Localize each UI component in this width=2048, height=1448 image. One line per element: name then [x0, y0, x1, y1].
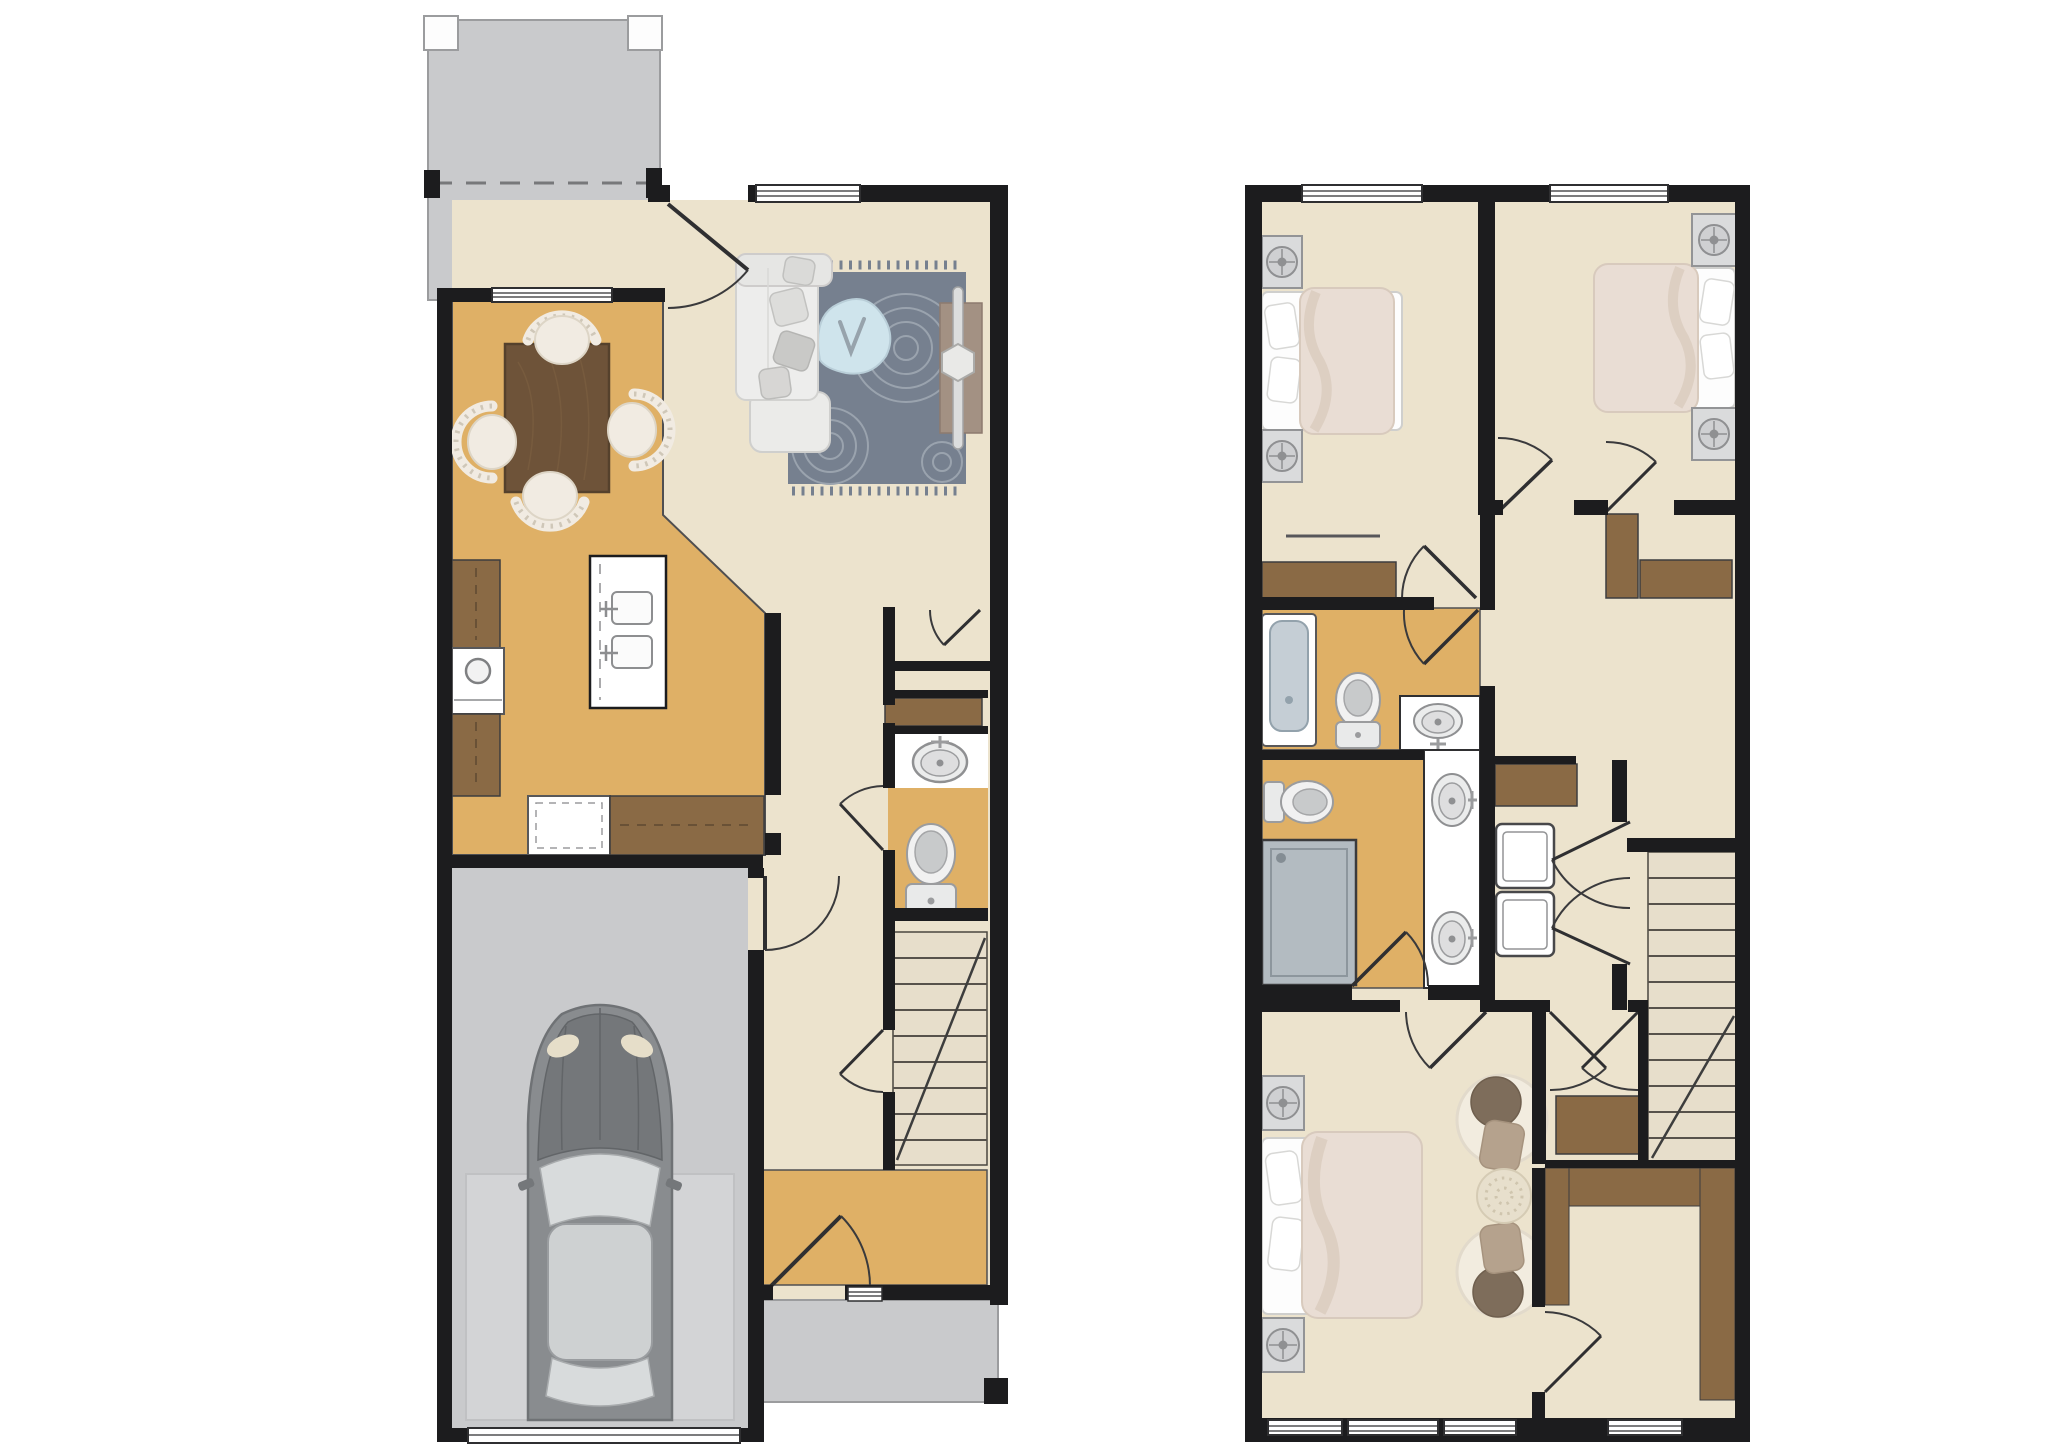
wall-kitchen-hall: [765, 613, 781, 795]
armchair-1-cushion: [1471, 1077, 1521, 1127]
porch: [762, 1300, 998, 1402]
linen-shelf: [1495, 764, 1577, 806]
rwall-closet-top: [1545, 1160, 1735, 1168]
lamp3-a-hub: [1710, 236, 1719, 245]
dryer: [1496, 892, 1554, 956]
rwall-bed3-bottom-b: [1674, 500, 1735, 515]
armchair-1-rest: [1478, 1119, 1526, 1173]
tv-decor-hexagon: [942, 344, 974, 381]
kitchen-cabinet: [528, 796, 610, 855]
patio-post-right: [628, 16, 662, 50]
wall-right: [990, 185, 1008, 1305]
chair-left-seat: [468, 415, 516, 469]
rwall-bath-divider: [1262, 750, 1424, 760]
chair-right-seat: [608, 403, 656, 457]
lampM-b-hub: [1279, 1341, 1288, 1350]
bathtub-drain: [1285, 696, 1293, 704]
rwall-left: [1245, 185, 1262, 1442]
bed3-pillow-2: [1699, 332, 1734, 379]
bathtub-inner: [1270, 621, 1308, 731]
wall-foyer-stub: [763, 1285, 773, 1300]
powder-sink-drain: [937, 760, 944, 767]
rwall-bedM-top-b: [1480, 1000, 1550, 1012]
window-dining: [492, 288, 612, 302]
floor-plan-svg: [0, 0, 2048, 1448]
wall-hall-west-d: [883, 1092, 895, 1170]
rwall-right: [1735, 185, 1750, 1442]
floor-plan-page: [0, 0, 2048, 1448]
wall-stairs-top: [883, 908, 988, 921]
wall-shelf-bottom: [883, 726, 988, 734]
closet2-shelf: [1262, 562, 1396, 598]
wall-hallcloset-bottom: [883, 661, 990, 671]
lamp2-b-hub: [1278, 452, 1287, 461]
sofa-pillow-4: [782, 256, 816, 287]
nook-dresser: [1556, 1096, 1640, 1154]
wall-garage-top: [437, 855, 763, 868]
foyer-sill: [848, 1287, 882, 1301]
armchair-2-rest: [1479, 1221, 1525, 1274]
rwall-laundry-b: [1612, 964, 1627, 1010]
bed3-pillow-1: [1699, 278, 1736, 326]
window-bedM-3: [1444, 1420, 1516, 1435]
wall-top-a: [648, 185, 670, 202]
window-bed2: [1302, 185, 1422, 202]
vanityM-sink-1-drain: [1449, 798, 1456, 805]
closetM-shelf-left: [1545, 1168, 1569, 1305]
chair-top-seat: [535, 316, 589, 364]
rwall-closet-left-b: [1532, 1392, 1545, 1418]
rwall-bed3-bottom-a: [1574, 500, 1608, 515]
toiletM-bowl-inner: [1293, 789, 1327, 815]
wall-dining-stub: [648, 288, 665, 302]
rwall-nook-left: [1532, 1012, 1546, 1164]
closet3-divider: [1606, 514, 1638, 598]
closet3-shelf: [1640, 560, 1732, 598]
foyer-floor: [763, 1170, 987, 1285]
window-closetM: [1608, 1420, 1682, 1435]
shower-head: [1276, 853, 1286, 863]
bed2-pillow-2: [1266, 356, 1301, 403]
window-bed3: [1550, 185, 1668, 202]
vanityM-sink-2-drain: [1449, 936, 1456, 943]
rug-throw-pillow: [818, 299, 890, 374]
armchair-2-cushion: [1473, 1267, 1523, 1317]
rwall-bathcol-b: [1480, 686, 1495, 1010]
car-roof: [548, 1224, 652, 1360]
toilet1-bowl-inner: [915, 831, 947, 873]
bedM-pillow-1: [1265, 1150, 1304, 1206]
sofa-pillow-3: [758, 366, 792, 400]
wall-garage-right-b: [748, 950, 764, 1442]
porch-corner-post: [984, 1378, 1008, 1404]
patio-post-left: [424, 16, 458, 50]
lampM-a-hub: [1279, 1099, 1288, 1108]
patio-wall-stub-left: [424, 170, 440, 198]
vanity2-sink-drain: [1435, 719, 1442, 726]
rwall-bed3-bottom-stub: [1495, 500, 1503, 515]
window-bedM-2: [1348, 1420, 1438, 1435]
shower: [1262, 840, 1356, 985]
rwall-mbath-bottom-b: [1428, 985, 1480, 1000]
window-living: [756, 185, 860, 202]
rwall-bedM-top-a: [1262, 1000, 1400, 1012]
wall-hall-west-c: [883, 850, 895, 1030]
rwall-bedM-top-c: [1628, 1000, 1648, 1012]
rwall-closet-left-a: [1532, 1168, 1545, 1307]
bedM-pillow-2: [1267, 1216, 1305, 1272]
rwall-mbath-bottom-a: [1262, 985, 1352, 1000]
rwall-laundry-a: [1612, 760, 1627, 822]
lamp2-a-hub: [1278, 258, 1287, 267]
washer: [1496, 824, 1554, 888]
bed2-pillow-1: [1264, 302, 1301, 350]
closetM-shelf-right: [1700, 1168, 1735, 1400]
rwall-bathcol-a: [1480, 515, 1495, 610]
rwall-nook-right: [1638, 1012, 1648, 1164]
hall-shelf: [885, 698, 982, 726]
wall-powder-top: [883, 690, 988, 698]
toilet2-bowl-inner: [1344, 680, 1372, 716]
chair-bottom-seat: [523, 472, 577, 520]
rwall-stairs-top: [1627, 838, 1748, 852]
rwall-bedroom-divider: [1478, 185, 1495, 515]
wall-kitchen-hall-stub: [765, 833, 781, 855]
car-windshield: [540, 1154, 660, 1226]
sofa-pillow-1: [768, 286, 809, 327]
toilet2-flush: [1355, 732, 1361, 738]
rwall-linen-top: [1488, 756, 1576, 764]
lamp3-b-hub: [1710, 430, 1719, 439]
wall-garage-right-a: [748, 868, 764, 878]
rwall-bed2-bottom: [1262, 597, 1434, 610]
window-bedM-1: [1268, 1420, 1342, 1435]
kitchen-island: [590, 556, 666, 708]
stove-burner: [466, 659, 490, 683]
toilet1-flush: [928, 898, 935, 905]
